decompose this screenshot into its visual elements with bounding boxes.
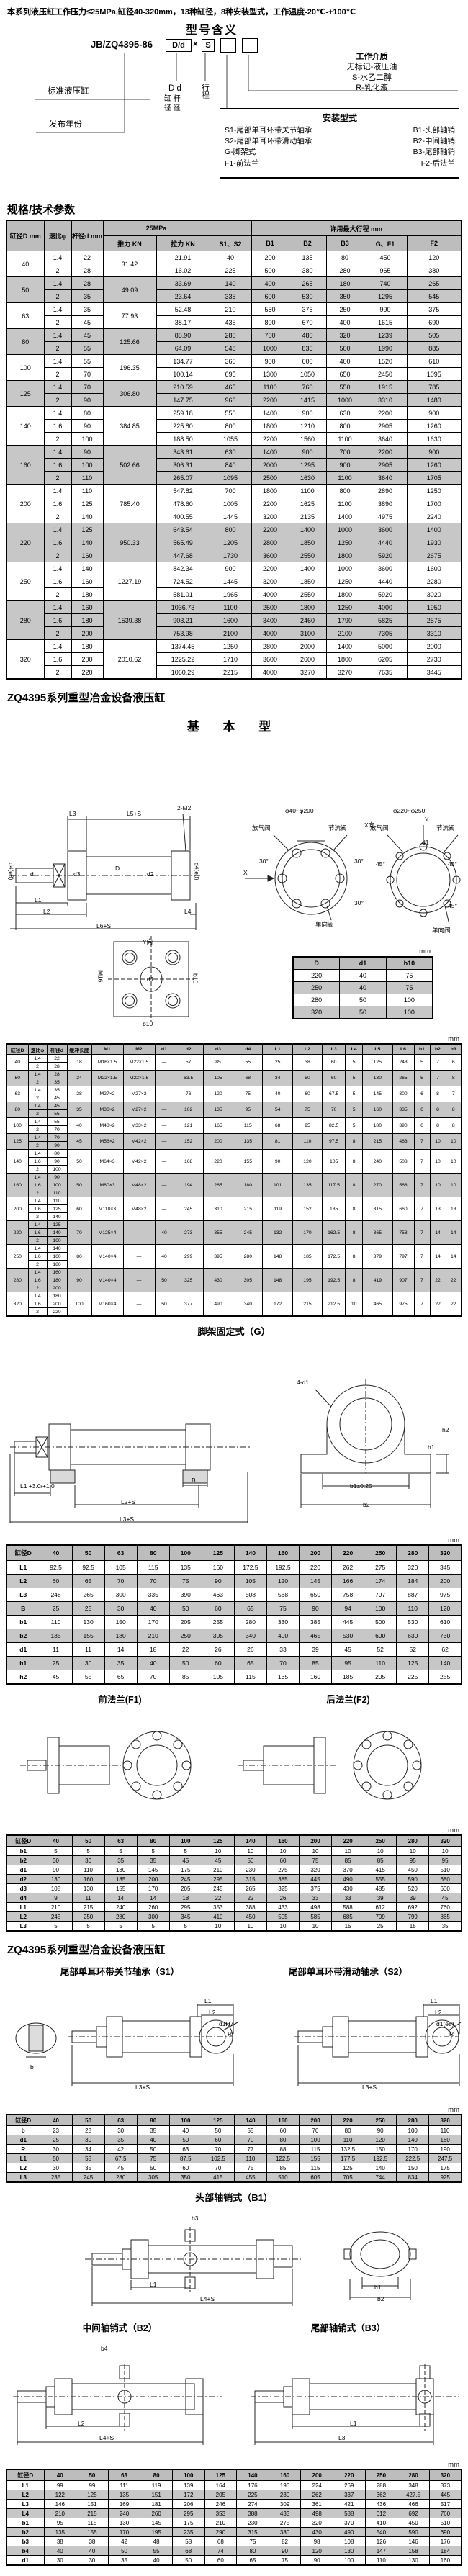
table-cell: 588 xyxy=(332,1903,364,1912)
table-cell: 550 xyxy=(251,303,289,316)
table-cell: — xyxy=(155,1086,174,1102)
table-cell: 175 xyxy=(429,2163,462,2173)
table-cell: 445 xyxy=(300,1875,332,1884)
table-row: 2201.412570M125×4—40273355245132170162.5… xyxy=(6,1221,462,1229)
table-cell: 2 xyxy=(44,588,71,601)
table-cell: 145 xyxy=(363,1086,392,1102)
mount-item: B1-头部轴销 xyxy=(413,125,455,136)
table-cell: 1100 xyxy=(251,381,289,394)
table-cell: 160 xyxy=(6,446,44,485)
table-cell: 7 xyxy=(414,1150,430,1174)
dim-label: 45° xyxy=(376,861,385,868)
designation-times: × xyxy=(193,40,198,50)
table-cell: 95 xyxy=(332,1657,364,1670)
dim-label: b1 xyxy=(374,2284,381,2291)
table-cell: 杆径d xyxy=(47,1044,67,1055)
dim-label: 30° xyxy=(354,858,364,865)
table-row: 3201.4180100M160×4—50377490340172215212.… xyxy=(6,1292,462,1300)
table-row: 22816.02225500380280965380 xyxy=(6,264,462,277)
table-cell: 28 xyxy=(71,264,103,277)
table-row: 25564.0954810008355001990885 xyxy=(6,342,462,355)
table-cell: 1.4 xyxy=(28,1150,47,1158)
table-cell: 1.4 xyxy=(44,251,71,264)
table-cell: 160 xyxy=(47,1253,67,1261)
table-cell: 38.17 xyxy=(156,316,210,329)
table-cell: 60 xyxy=(40,1575,72,1588)
table-cell: 60 xyxy=(323,1071,346,1086)
table-cell: b2 xyxy=(6,2528,44,2537)
table-cell: 166 xyxy=(332,1575,364,1588)
table-cell: 797 xyxy=(364,1588,397,1602)
table-cell: 45 xyxy=(47,1102,67,1110)
table-cell: 80 xyxy=(237,2546,269,2556)
table-cell: 388 xyxy=(237,2509,269,2518)
table-row: h125303540506065708595110125140 xyxy=(6,1657,462,1670)
table-cell: 85 xyxy=(364,1856,397,1865)
table-cell: 340 xyxy=(233,1292,263,1317)
table-cell: 210.59 xyxy=(156,381,210,394)
dim-label: b4 xyxy=(101,2346,107,2352)
table-cell: M2 xyxy=(123,1044,155,1055)
table-cell: L3 xyxy=(6,1922,40,1932)
table-cell: 340 xyxy=(234,1629,266,1643)
table-cell: 28 xyxy=(47,1071,67,1078)
table-row: 1601.49050M80×3M48×2—194265180101135117.… xyxy=(6,1174,462,1181)
table-cell: 760 xyxy=(429,1903,462,1912)
table-cell: 450 xyxy=(234,1912,266,1922)
table-cell: h1 xyxy=(414,1044,430,1055)
table-cell: 68 xyxy=(172,2546,204,2556)
table-cell: 60 xyxy=(67,1197,91,1221)
table-cell: 335 xyxy=(210,290,251,303)
table-row: 22201060.29221540003270327076353445 xyxy=(6,666,462,680)
table-cell: 6 xyxy=(414,1086,430,1102)
table-cell: 903.21 xyxy=(156,614,210,627)
table-cell: 7305 xyxy=(364,627,407,640)
table-cell: 3640 xyxy=(364,472,407,485)
table-cell: 120 xyxy=(429,1602,462,1616)
table-cell: 16.02 xyxy=(156,264,210,277)
table-row: b44040505568748090120130147158184 xyxy=(6,2546,462,2556)
table-cell: 215 xyxy=(76,2509,109,2518)
table-cell: 2 xyxy=(28,1237,47,1245)
eye-mount-table: 缸径D40506380100125140160200220250280320b2… xyxy=(6,2114,462,2183)
table-cell: 588 xyxy=(333,2509,365,2518)
table-cell: B3 xyxy=(326,236,364,251)
table-cell: 49.09 xyxy=(103,277,156,303)
table-cell: 175 xyxy=(172,2518,204,2528)
table-cell: 220 xyxy=(203,1150,233,1174)
dim-label: φ40~φ200 xyxy=(285,808,314,814)
table-cell: 210 xyxy=(44,2509,76,2518)
table-cell: 120 xyxy=(266,1575,299,1588)
table-row: 2140400.55144532002135140049752240 xyxy=(6,510,462,523)
table-cell: 2000 xyxy=(251,459,289,472)
table-cell: 180 xyxy=(47,1261,67,1269)
table-cell: 160 xyxy=(429,2135,462,2145)
table-cell: 555 xyxy=(364,1875,397,1884)
table-cell: 605 xyxy=(300,2173,332,2183)
table-row: L224525028030034541045050558568570979986… xyxy=(6,1912,462,1922)
table-cell: L1 xyxy=(6,2154,40,2163)
table-cell: 280 xyxy=(6,601,44,640)
table-cell: — xyxy=(155,1134,174,1150)
table-cell: 160 xyxy=(269,2469,301,2481)
table-cell: 25 xyxy=(72,1602,104,1616)
table-cell: — xyxy=(155,1118,174,1134)
table-cell: 62 xyxy=(429,1643,462,1657)
table-cell: 4000 xyxy=(251,666,289,680)
table-cell: 840 xyxy=(210,459,251,472)
table-cell: 530 xyxy=(332,1629,364,1643)
table-cell: 463 xyxy=(202,1588,234,1602)
table-cell: 270 xyxy=(363,1174,392,1197)
table-cell: 63 xyxy=(6,303,44,329)
table-cell: 63 xyxy=(6,1086,28,1102)
table-cell: 38 xyxy=(76,2537,109,2546)
table-cell: 1705 xyxy=(407,472,462,485)
table-cell: 50 xyxy=(155,1269,174,1292)
table-cell: 230 xyxy=(269,2490,301,2500)
table-cell: R xyxy=(6,2145,40,2154)
table-cell: 185 xyxy=(292,1245,322,1269)
table-cell: 80 xyxy=(137,1545,169,1561)
table-cell: 3600 xyxy=(251,549,289,562)
table-cell: 140 xyxy=(47,1245,67,1253)
table-cell: 184 xyxy=(397,1575,429,1588)
table-cell: 280 xyxy=(397,1835,429,1847)
table-row: 1.6140565.49120528001850125044401930 xyxy=(6,536,462,549)
table-cell: 160 xyxy=(71,601,103,614)
table-cell: 94 xyxy=(332,1602,364,1616)
table-cell: 5 xyxy=(104,1922,137,1932)
table-cell: 1225.22 xyxy=(156,653,210,666)
table-cell: 600 xyxy=(429,1884,462,1893)
table-cell xyxy=(210,220,251,236)
table-cell: 151 xyxy=(76,2500,109,2509)
table-row: h24555657085105115135160185205225255 xyxy=(6,1670,462,1685)
table-cell: 1600 xyxy=(210,614,251,627)
table-cell: 465 xyxy=(363,1292,392,1317)
table-cell: 65 xyxy=(237,2556,269,2566)
table-cell: 550 xyxy=(210,407,251,420)
table-cell: 220 xyxy=(293,970,340,982)
g-figure-title: 脚架固定式（G） xyxy=(6,1324,462,1338)
table-cell: 498 xyxy=(301,2509,333,2518)
table-cell: 缸径D xyxy=(6,2469,44,2481)
table-cell: 130 xyxy=(397,2556,430,2566)
table-cell: 375 xyxy=(289,303,326,316)
table-cell: 195 xyxy=(292,1269,322,1292)
table-cell: 125 xyxy=(202,1545,234,1561)
table-cell: 1210 xyxy=(289,420,326,433)
table-row: L324826530033539046350856865075879788797… xyxy=(6,1588,462,1602)
table-cell: 5 xyxy=(169,1922,202,1932)
table-cell: 110 xyxy=(364,1657,397,1670)
table-cell: 274 xyxy=(237,2500,269,2509)
table-cell: M36×2 xyxy=(91,1102,123,1118)
table-row: 631.43577.9352.48210550375250990375 xyxy=(6,303,462,316)
mount-item: B3-尾部轴销 xyxy=(413,147,455,158)
table-row: L1505567.57587.5102.5110122.5155177.5192… xyxy=(6,2154,462,2163)
table-cell: 1480 xyxy=(407,394,462,407)
rear-flange-title: 后法兰(F2) xyxy=(234,1692,462,1706)
table-cell: 2905 xyxy=(364,459,407,472)
table-cell: d4 xyxy=(6,1893,40,1903)
table-cell: 108 xyxy=(333,2537,365,2546)
dim-label: 节流阀 xyxy=(328,825,347,832)
table-cell: 180 xyxy=(47,1292,67,1300)
table-cell: 265 xyxy=(392,1071,414,1086)
table-cell: 585 xyxy=(300,1912,332,1922)
table-cell: 65 xyxy=(72,1575,104,1588)
table-row: 2100188.50105522001560110036401630 xyxy=(6,433,462,446)
table-cell: 68 xyxy=(263,1118,292,1134)
table-cell: 135 xyxy=(289,251,326,264)
dim-label: B xyxy=(192,1477,196,1484)
table-cell: 130 xyxy=(104,1865,137,1875)
table-cell: F2 xyxy=(407,236,462,251)
table-cell: 90 xyxy=(67,1269,91,1292)
table-cell: 54 xyxy=(263,1102,292,1118)
table-row: 290147.7596022001415100033101480 xyxy=(6,394,462,407)
b2-title: 中间轴销式（B2） xyxy=(6,2320,234,2334)
table-cell: 170 xyxy=(137,1616,169,1629)
table-cell: 135 xyxy=(40,1629,72,1643)
table-cell: b3 xyxy=(6,2537,44,2546)
table-cell: 1.4 xyxy=(44,277,71,290)
table-cell: 248 xyxy=(392,1055,414,1071)
table-cell: 450 xyxy=(397,1865,429,1875)
table-cell: 188.50 xyxy=(156,433,210,446)
table-cell: 200 xyxy=(47,1284,67,1292)
table-cell: M27×2 xyxy=(91,1086,123,1102)
table-cell: 630 xyxy=(397,1629,429,1643)
table-cell: 692 xyxy=(397,2509,430,2518)
dim-label: L3 xyxy=(69,811,76,817)
table-cell: 1560 xyxy=(289,433,326,446)
table-cell: 760 xyxy=(429,2509,462,2518)
table-cell: 1.6 xyxy=(44,497,71,510)
table-cell: 170 xyxy=(108,2528,140,2537)
table-cell: 110 xyxy=(40,1616,72,1629)
table-cell: 30 xyxy=(72,1856,104,1865)
table-cell: 50 xyxy=(137,2145,169,2154)
table-cell: 250 xyxy=(326,303,364,316)
table-cell: 146 xyxy=(44,2500,76,2509)
table-cell: 缸径D xyxy=(6,1545,40,1561)
table-cell: 1710 xyxy=(210,653,251,666)
table-cell: 530 xyxy=(397,1616,429,1629)
table-cell: 320 xyxy=(429,1835,462,1847)
table-cell: 10 xyxy=(446,1174,462,1197)
table-cell: 1730 xyxy=(210,549,251,562)
table-cell: 60 xyxy=(323,1055,346,1071)
table-cell: 1.4 xyxy=(44,640,71,653)
table-cell: 176 xyxy=(429,2537,462,2546)
table-cell: 5 xyxy=(346,1071,363,1086)
table-cell: 950.33 xyxy=(103,523,156,562)
table-cell: 2500 xyxy=(251,601,289,614)
table-cell: d1 xyxy=(155,1044,174,1055)
table-cell: 2000 xyxy=(289,640,326,653)
table-cell: 68 xyxy=(204,2537,237,2546)
table-cell: 5 xyxy=(72,1847,104,1856)
table-cell: 250 xyxy=(364,2115,397,2126)
b1-title: 头部轴销式（B1） xyxy=(6,2190,462,2204)
table-cell: 1100 xyxy=(326,433,364,446)
table-cell: 160 xyxy=(71,575,103,588)
table-cell: 200 xyxy=(251,251,289,264)
table-cell: 1.4 xyxy=(28,1134,47,1142)
dim-label: R xyxy=(449,2031,454,2037)
table-cell: L3 xyxy=(323,1044,346,1055)
table-row: 2160447.68173036002550180059202675 xyxy=(6,549,462,562)
table-cell: 90 xyxy=(47,1174,67,1181)
mount-type-block: 安装型式 S1-尾部单耳环带关节轴承B1-头部轴销 S2-尾部单耳环带滑动轴承B… xyxy=(220,108,459,179)
table-cell: 101 xyxy=(263,1174,292,1197)
table-cell: 306.31 xyxy=(156,459,210,472)
table-cell: 1.4 xyxy=(28,1197,47,1205)
table-cell: 1700 xyxy=(407,497,462,510)
table-cell: 2 xyxy=(28,1142,47,1150)
table-cell: 265 xyxy=(72,1588,104,1602)
dim-label: 45° xyxy=(448,903,457,909)
table-cell: L1 xyxy=(6,1903,40,1912)
table-row: 401.42231.4221.914020013580450120 xyxy=(6,251,462,264)
table-cell: 24 xyxy=(67,1071,91,1086)
table-cell: 34 xyxy=(72,2145,104,2154)
table-cell: 80 xyxy=(6,1102,28,1118)
table-cell: 545 xyxy=(407,290,462,303)
table-cell: 110 xyxy=(332,2135,364,2145)
table-cell: 160 xyxy=(6,1174,28,1197)
table-cell: 220 xyxy=(332,2115,364,2126)
table-cell: 430 xyxy=(332,1884,364,1893)
dim-label: L1 xyxy=(150,2282,156,2288)
table-cell: 1.4 xyxy=(44,407,71,420)
table-cell: 152 xyxy=(174,1134,203,1150)
table-cell: 200 xyxy=(300,1835,332,1847)
table-cell: 7 xyxy=(414,1174,430,1197)
table-cell: 320 xyxy=(326,329,364,342)
table-cell: 224 xyxy=(301,2481,333,2490)
dim-label: L1 xyxy=(350,2420,356,2427)
table-cell: 225 xyxy=(210,264,251,277)
table-cell: 97.5 xyxy=(323,1134,346,1150)
table-cell: 50 xyxy=(72,1545,104,1561)
table-row: b1555551010101010101010 xyxy=(6,1847,462,1856)
table-cell: 200 xyxy=(6,485,44,523)
table-cell: 105 xyxy=(203,1071,233,1086)
table-cell: 75 xyxy=(234,2163,266,2173)
table-cell: 160 xyxy=(266,1835,299,1847)
table-cell: 650 xyxy=(326,368,364,381)
table-cell: 1.4 xyxy=(28,1292,47,1300)
table-cell: 140 xyxy=(47,1229,67,1237)
table-cell: 306.80 xyxy=(103,381,156,407)
table-cell: 280 xyxy=(233,1245,263,1269)
table-cell: 77 xyxy=(234,2145,266,2154)
table-cell: 121 xyxy=(174,1118,203,1134)
table-cell: 7 xyxy=(414,1269,430,1292)
table-cell: 160 xyxy=(363,1102,392,1118)
table-cell: 122.5 xyxy=(266,2154,299,2163)
table-cell: 50 xyxy=(72,2115,104,2126)
series-title-1: ZQ4395系列重型冶金设备液压缸 xyxy=(7,690,462,705)
dim-label: b10 xyxy=(143,1021,153,1027)
table-cell: 410 xyxy=(202,1912,234,1922)
unit-label: mm xyxy=(6,2461,462,2469)
table-cell: 2600 xyxy=(289,653,326,666)
table-cell: 834 xyxy=(397,2173,429,2183)
table-cell: 140 xyxy=(6,1150,28,1174)
table-cell: 1400 xyxy=(289,562,326,575)
table-cell: 435 xyxy=(210,316,251,329)
table-row: 501.42849.0933.69140400265180740265 xyxy=(6,277,462,290)
table-cell: B1 xyxy=(251,236,289,251)
table-cell: 140 xyxy=(429,1657,462,1670)
table-cell: 520 xyxy=(397,1884,429,1893)
table-cell: 433 xyxy=(269,2509,301,2518)
table-cell: 510 xyxy=(429,1865,462,1875)
table-cell: 427.5 xyxy=(397,2490,430,2500)
dim-label: L2 xyxy=(435,2009,441,2016)
table-cell: 60 xyxy=(292,1086,322,1102)
table-cell: 缸径D xyxy=(6,2115,40,2126)
table-cell: 11 xyxy=(40,1643,72,1657)
table-cell: 2 xyxy=(44,627,71,640)
table-cell: 105 xyxy=(104,1561,137,1575)
medium-item: S-水乙二醇 xyxy=(291,73,453,83)
table-cell: 180 xyxy=(71,614,103,627)
table-cell: 498 xyxy=(300,1903,332,1912)
table-cell: 610 xyxy=(407,355,462,368)
table-cell: 42 xyxy=(104,2145,137,2154)
table-cell: 181 xyxy=(140,2500,173,2509)
table-cell: 240 xyxy=(104,1903,137,1912)
table-row: d213016018520024529531538544549055559068… xyxy=(6,1875,462,1884)
table-cell: 65 xyxy=(104,1670,137,1685)
table-cell: 50 xyxy=(155,1292,174,1317)
table-cell: 450 xyxy=(397,2518,430,2528)
table-cell: 361 xyxy=(301,2500,333,2509)
table-cell: 7 xyxy=(430,1071,446,1086)
table-cell: b4 xyxy=(6,2546,44,2556)
table-cell: 5 xyxy=(414,1055,430,1071)
table-header-row: 缸径D mm速比φ杆径d mm25MPa 许用最大行程 mm xyxy=(6,220,462,236)
table-cell: 262 xyxy=(332,1561,364,1575)
table-cell: 90 xyxy=(263,1150,292,1174)
mount-item: F1-前法兰 xyxy=(225,158,372,169)
table-cell: 40 xyxy=(155,1221,174,1245)
table-cell: 463 xyxy=(392,1134,414,1150)
table-cell: 50 xyxy=(108,2546,140,2556)
table-row: b2328303540505560708090100110 xyxy=(6,2126,462,2135)
table-cell: 353 xyxy=(204,2509,237,2518)
table-cell: 1295 xyxy=(289,459,326,472)
table-row: b213515518021025030534040046553060063073… xyxy=(6,1629,462,1643)
table-cell: 35 xyxy=(47,1078,67,1086)
table-cell: 692 xyxy=(397,1903,429,1912)
table-cell: 887 xyxy=(397,1588,429,1602)
table-cell: 192.5 xyxy=(266,1561,299,1575)
table-cell: 160 xyxy=(202,1561,234,1575)
table-cell: 430 xyxy=(203,1269,233,1292)
table-cell: 280 xyxy=(104,2173,137,2183)
table-cell: 90 xyxy=(202,1575,234,1588)
table-cell: 7 xyxy=(446,1086,462,1102)
